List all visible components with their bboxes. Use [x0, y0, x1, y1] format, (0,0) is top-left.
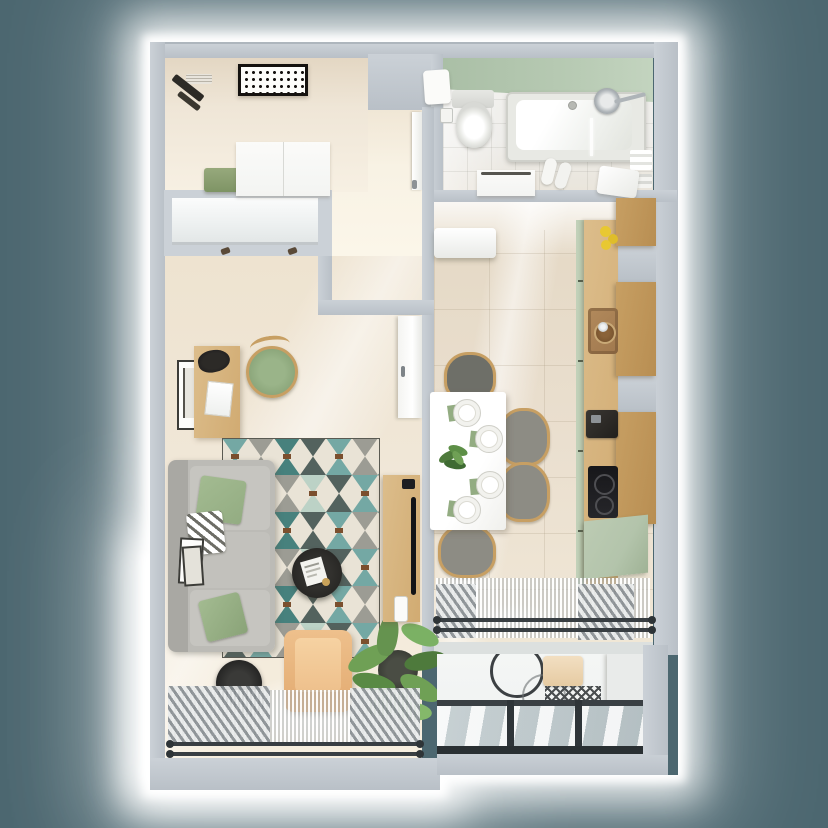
- floor-plan-stage: [0, 0, 828, 828]
- glazing-mullion: [575, 700, 582, 748]
- rail-knob: [648, 616, 656, 624]
- lemon: [601, 240, 611, 250]
- plate: [475, 425, 503, 453]
- wall-right: [654, 42, 678, 655]
- towel-on-wall: [423, 69, 451, 105]
- table-plant: [436, 442, 472, 478]
- tv: [411, 497, 416, 595]
- seat-cushion: [543, 656, 583, 686]
- living-radiator-left: [168, 686, 270, 746]
- upper-cabinet-1: [616, 198, 656, 246]
- rail-knob: [166, 750, 174, 758]
- wall-bottom-living: [150, 758, 440, 790]
- laundry-basket: [596, 165, 640, 198]
- plate: [453, 496, 481, 524]
- rail-knob: [416, 750, 424, 758]
- bathtub-drain: [568, 101, 577, 110]
- glazing-bottom-frame: [437, 746, 643, 754]
- closet-door-handle: [287, 247, 298, 256]
- ventilation-grille: [186, 74, 212, 84]
- closet-door-handle: [220, 247, 231, 256]
- plate: [476, 471, 504, 499]
- plate: [453, 399, 481, 427]
- leaning-frame: [182, 545, 205, 586]
- toilet-bowl: [456, 102, 492, 148]
- wall-left: [150, 42, 165, 790]
- rail-knob: [416, 740, 424, 748]
- coffee-machine: [586, 410, 618, 438]
- base-cabinet-green: [584, 515, 648, 580]
- kitchen-window-sill: [434, 642, 653, 654]
- wall-living-kitchen: [422, 107, 434, 655]
- kitchen-door-handle: [401, 366, 405, 377]
- hall-wardrobe: [236, 142, 330, 196]
- rail-knob: [166, 740, 174, 748]
- wall-cabinet-gap-2: [616, 376, 656, 412]
- cooktop: [588, 466, 618, 518]
- living-radiator-right: [350, 688, 420, 746]
- remote: [394, 596, 408, 622]
- upper-cabinet-2: [616, 282, 656, 376]
- toilet-paper-holder: [440, 108, 453, 123]
- closet-door-track: [172, 242, 318, 245]
- bathroom-vanity: [477, 170, 535, 196]
- glass-panes: [437, 706, 643, 748]
- vanity-towel-bar: [481, 172, 531, 175]
- coffee-table-gold-item: [322, 578, 330, 586]
- bathtub: [506, 92, 646, 162]
- glazing-mullion: [507, 700, 514, 748]
- wall-bottom-balcony: [437, 752, 668, 775]
- dining-chair-bottom: [438, 524, 496, 578]
- living-window-rail-1: [170, 742, 420, 746]
- bathroom-door-handle: [412, 180, 417, 189]
- kitchen-window-rail-1: [436, 618, 652, 622]
- living-window-rail-2: [170, 752, 420, 756]
- closet-sliding-doors: [172, 198, 318, 242]
- room-balcony: [437, 654, 643, 754]
- upper-cabinet-3: [616, 412, 656, 524]
- tv-base: [402, 479, 415, 489]
- rail-knob: [648, 626, 656, 634]
- wall-balcony-right: [643, 645, 668, 755]
- wardrobe-seam: [283, 142, 284, 196]
- shower-glass-screen: [590, 118, 593, 156]
- kitchen-window-rail-2: [436, 628, 652, 632]
- laptop: [204, 381, 233, 418]
- closet-box: [164, 190, 332, 256]
- kitchen-faucet: [598, 322, 608, 332]
- wall-corridor-stub: [318, 300, 434, 315]
- wall-cabinet-gap-1: [616, 246, 656, 282]
- bathroom-door: [412, 112, 422, 190]
- air-conditioner: [434, 228, 496, 258]
- hall-ceiling-light: [238, 64, 308, 96]
- towel-shelf: [630, 150, 652, 170]
